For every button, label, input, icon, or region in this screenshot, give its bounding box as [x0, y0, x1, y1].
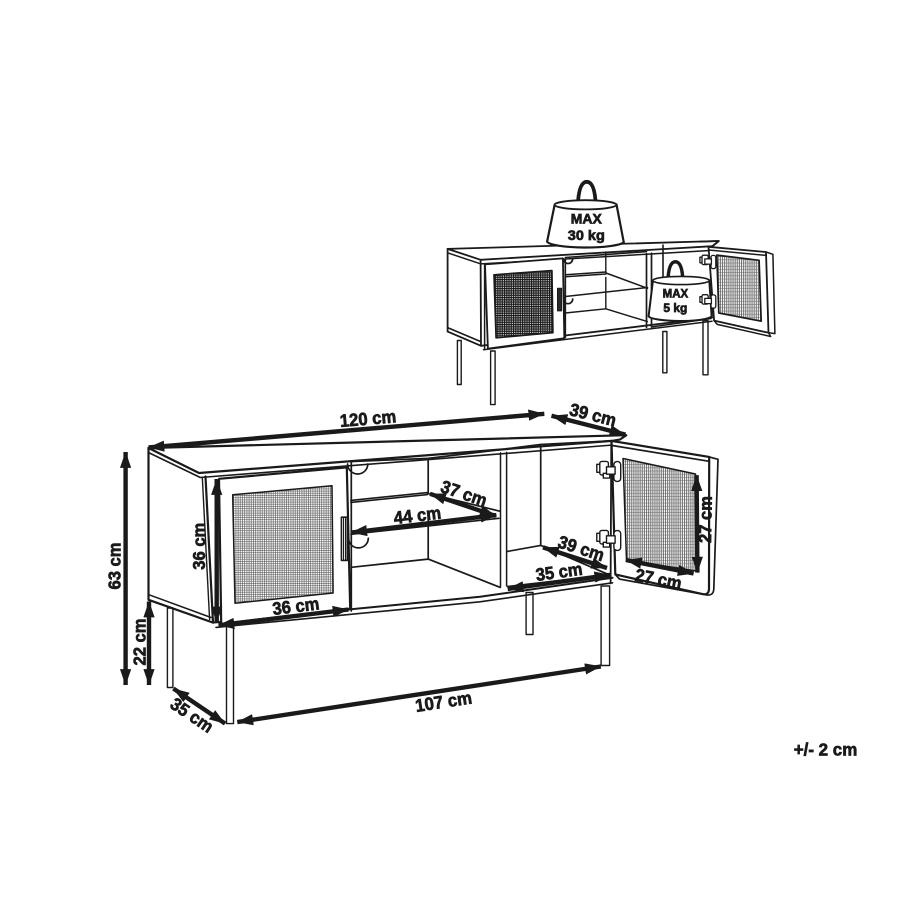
svg-text:+/- 2 cm: +/- 2 cm — [794, 740, 858, 760]
svg-text:63 cm: 63 cm — [105, 543, 125, 590]
svg-text:22 cm: 22 cm — [130, 619, 150, 666]
svg-text:27 cm: 27 cm — [695, 496, 716, 543]
svg-text:5 kg: 5 kg — [663, 302, 687, 315]
svg-text:30 kg: 30 kg — [568, 228, 605, 243]
svg-text:MAX: MAX — [571, 211, 602, 226]
svg-text:MAX: MAX — [663, 288, 689, 301]
svg-text:36 cm: 36 cm — [189, 523, 209, 570]
